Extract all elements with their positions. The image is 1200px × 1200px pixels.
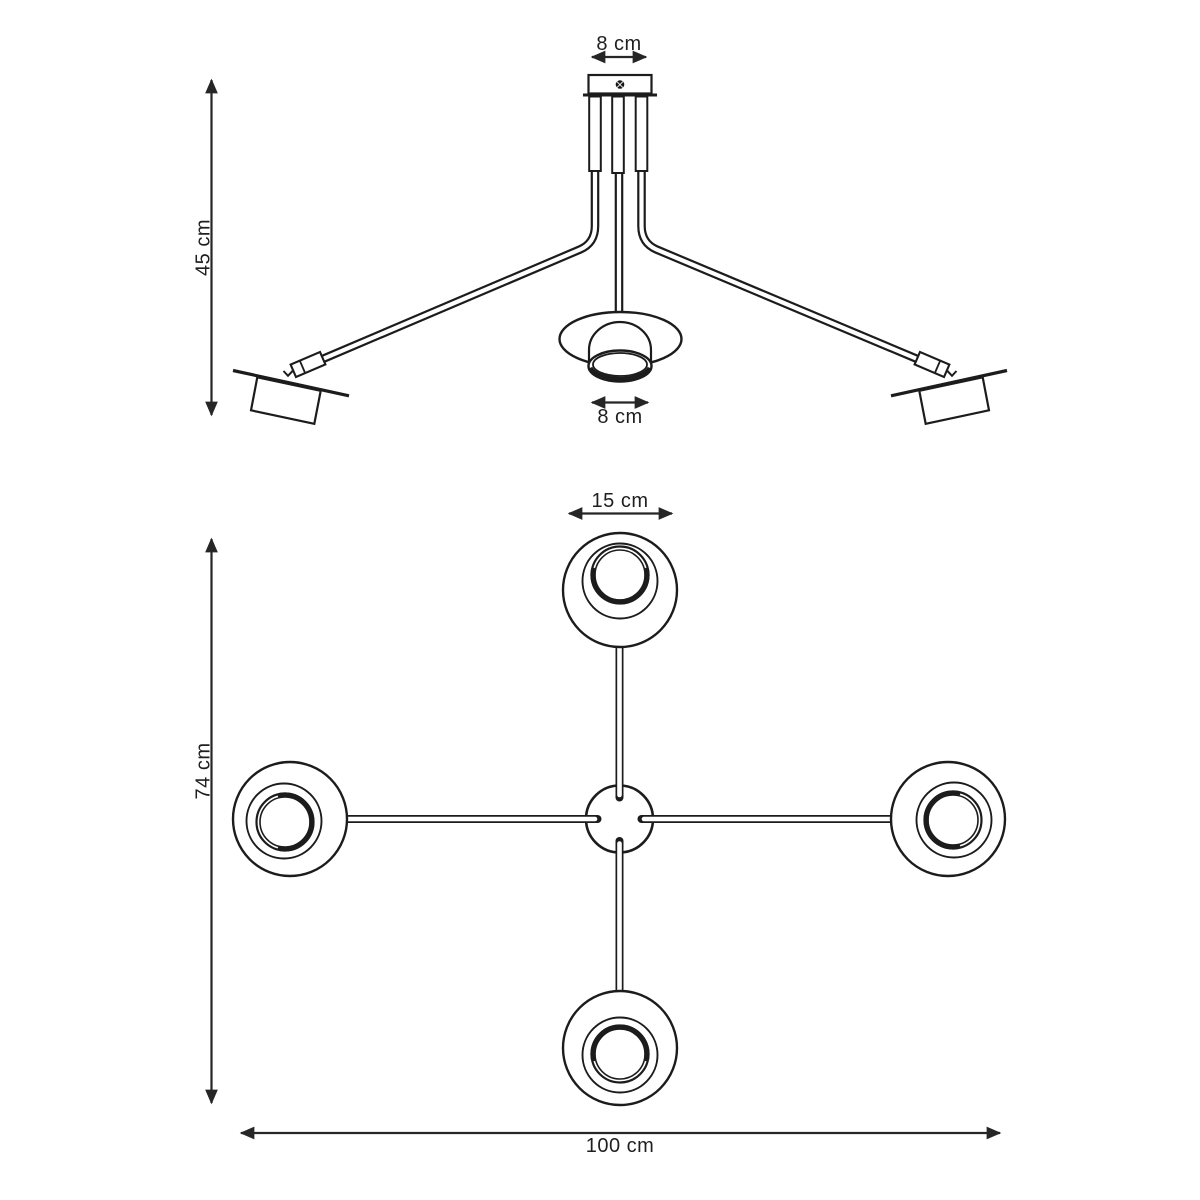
arm-left-side [318, 165, 595, 361]
dim-overall-height-label: 45 cm [193, 219, 215, 276]
dim-head-diameter-label: 15 cm [592, 490, 649, 512]
drawing-canvas: 8 cm 45 cm 8 cm [0, 0, 1200, 1200]
hanging-tubes [589, 97, 647, 174]
left-shade-body [251, 377, 321, 424]
left-shade-connector [291, 352, 326, 377]
right-shade-body [919, 377, 989, 424]
screw-icon [616, 80, 625, 89]
dim-canopy-width-label: 8 cm [596, 33, 641, 55]
arm-right-core [642, 165, 923, 361]
arm-right-side [642, 165, 923, 361]
tube-sleeve-right [636, 97, 648, 172]
head-bottom [563, 991, 677, 1105]
tube-sleeve-left [589, 97, 601, 172]
dim-overall-depth: 74 cm [193, 539, 215, 1103]
center-shade-side [560, 312, 682, 382]
right-shade-connector [915, 352, 950, 377]
head-top [563, 533, 677, 647]
right-connector-sleeve [915, 352, 950, 377]
dim-overall-width-label: 100 cm [586, 1135, 655, 1157]
tube-sleeve-center [612, 97, 624, 174]
arm-left-core [318, 165, 595, 361]
left-shade-pivot [284, 370, 294, 376]
dim-center-shade-width-label: 8 cm [597, 406, 642, 428]
ceiling-canopy [583, 75, 657, 95]
head-right [891, 762, 1005, 876]
dim-overall-width: 100 cm [241, 1133, 1000, 1157]
dim-overall-depth-label: 74 cm [193, 743, 215, 800]
dim-center-shade-width: 8 cm [592, 403, 648, 429]
left-shade-side [233, 352, 349, 424]
right-shade-pivot [947, 370, 957, 376]
side-view: 8 cm 45 cm 8 cm [193, 33, 1008, 428]
head-left [233, 762, 347, 876]
left-connector-sleeve [291, 352, 326, 377]
dim-head-diameter: 15 cm [569, 490, 672, 514]
dim-overall-height: 45 cm [193, 80, 215, 415]
dim-canopy-width: 8 cm [592, 33, 646, 57]
lamp-dimension-drawing: 8 cm 45 cm 8 cm [0, 0, 1200, 1200]
top-view: 15 cm 74 cm 100 cm [193, 490, 1006, 1157]
right-shade-side [891, 352, 1007, 424]
